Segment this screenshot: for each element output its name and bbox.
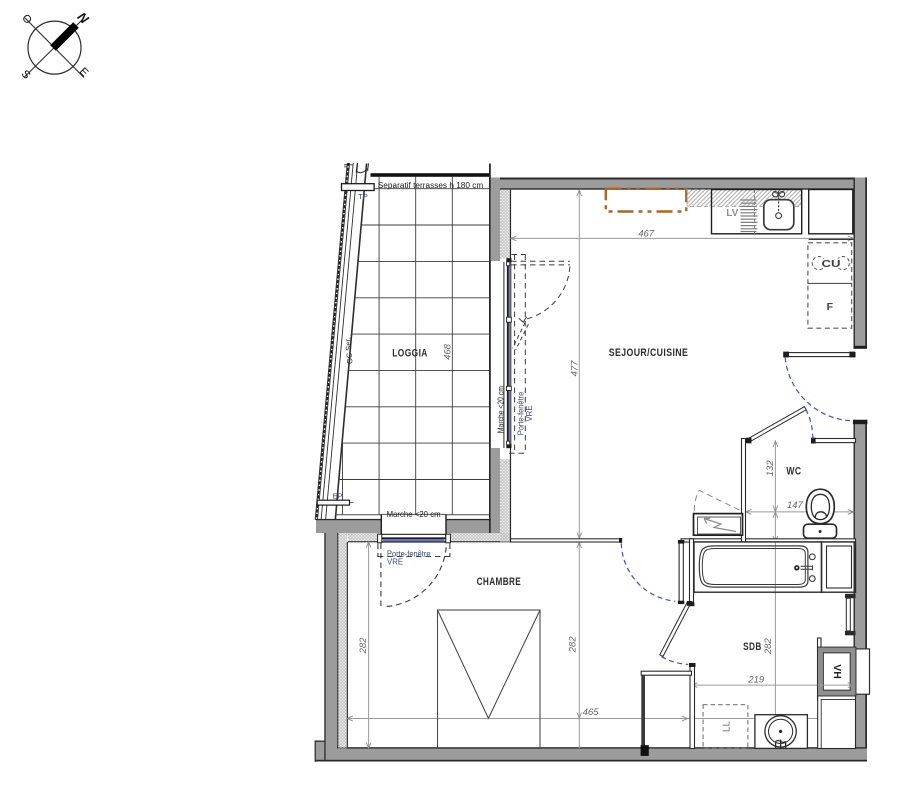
- svg-text:282: 282: [358, 637, 369, 655]
- svg-text:F: F: [827, 301, 834, 313]
- svg-text:477: 477: [570, 360, 581, 377]
- svg-text:S: S: [19, 68, 33, 82]
- svg-text:LL: LL: [722, 721, 733, 733]
- svg-text:Marche <20 cm: Marche <20 cm: [387, 510, 441, 519]
- svg-text:SEJOUR/CUISINE: SEJOUR/CUISINE: [609, 347, 689, 359]
- svg-text:VH: VH: [831, 664, 843, 679]
- svg-text:219: 219: [747, 675, 765, 686]
- svg-text:VRE: VRE: [387, 558, 403, 567]
- svg-text:147: 147: [787, 500, 804, 511]
- svg-text:282: 282: [763, 638, 774, 656]
- svg-text:132: 132: [765, 460, 776, 477]
- svg-text:Marche <20 cm: Marche <20 cm: [496, 386, 505, 433]
- svg-text:TP: TP: [358, 192, 368, 201]
- svg-text:CHAMBRE: CHAMBRE: [477, 576, 522, 588]
- svg-text:WC: WC: [786, 465, 801, 477]
- svg-text:E: E: [77, 66, 91, 80]
- svg-text:467: 467: [638, 228, 655, 239]
- svg-text:EP: EP: [333, 491, 343, 500]
- svg-text:SDB: SDB: [743, 641, 762, 653]
- svg-text:LOGGIA: LOGGIA: [392, 347, 428, 359]
- svg-text:282: 282: [567, 636, 578, 654]
- svg-text:GC Ser.: GC Ser.: [343, 337, 354, 364]
- svg-text:VRE: VRE: [525, 405, 534, 421]
- svg-text:CU: CU: [822, 258, 841, 270]
- svg-text:465: 465: [583, 707, 600, 718]
- svg-text:Separatif terrasses h 180 cm: Separatif terrasses h 180 cm: [378, 181, 484, 190]
- svg-text:468: 468: [443, 343, 454, 360]
- svg-text:LV: LV: [726, 208, 738, 219]
